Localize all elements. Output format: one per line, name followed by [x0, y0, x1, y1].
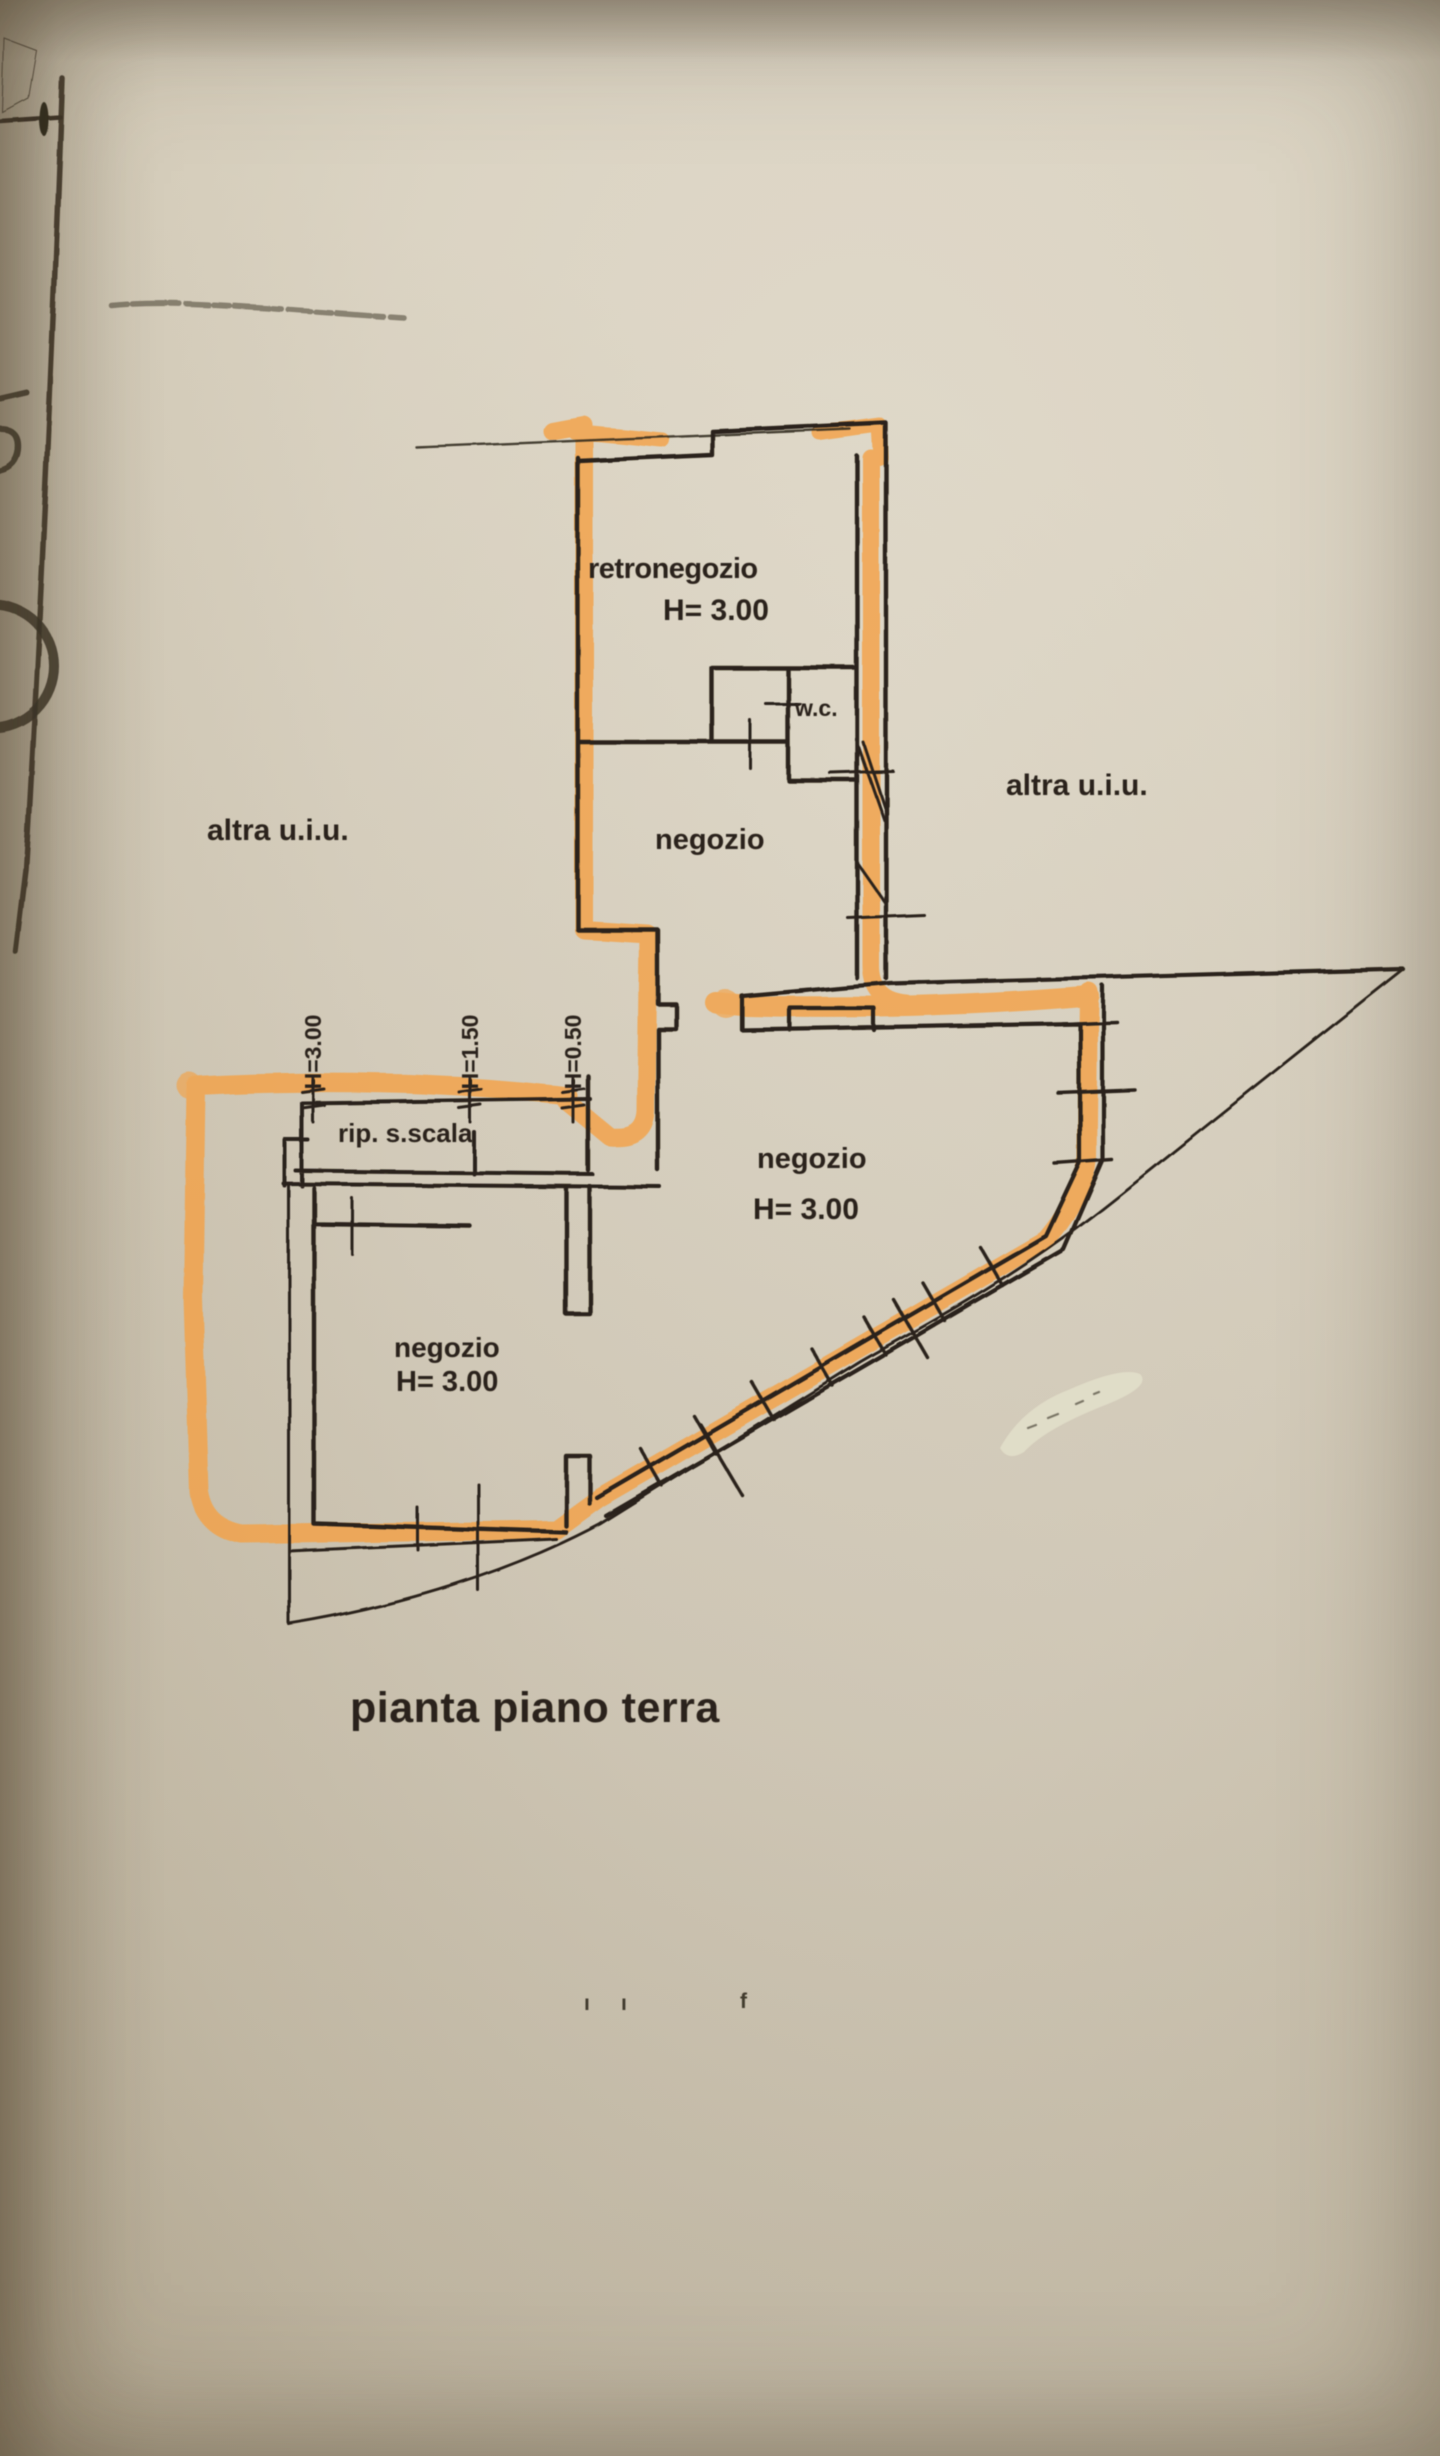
floor-plan-drawing: retronegozio H= 3.00 w.c. negozio altra …	[0, 0, 1440, 2456]
room-label-negozio-lower: negozio	[394, 1332, 500, 1363]
room-label-retronegozio: retronegozio	[588, 553, 758, 585]
edge-circle-fragment	[0, 604, 54, 728]
highlight-blob-left	[177, 1073, 203, 1099]
annotation-altra-uiu-left: altra u.i.u.	[207, 814, 349, 847]
height-annotation-h300: H=3.00	[300, 1015, 326, 1090]
room-height-retronegozio: H= 3.00	[663, 594, 769, 627]
height-annotation-h050: H=0.50	[560, 1015, 586, 1090]
stray-mark-1: ı	[584, 1992, 590, 2015]
highlight-upper-right-wall	[871, 458, 906, 1003]
whiteout-shape	[1000, 1372, 1143, 1456]
edge-glyph-fragment	[0, 392, 26, 470]
highlight-blob-mid	[712, 990, 740, 1018]
room-label-wc: w.c.	[794, 695, 838, 721]
upper-block-walls	[578, 423, 886, 1170]
scanned-floor-plan-photo: retronegozio H= 3.00 w.c. negozio altra …	[0, 0, 1440, 2456]
room-height-negozio-right: H= 3.00	[753, 1193, 859, 1226]
edge-smudge-line	[112, 304, 404, 318]
upper-block-door-ticks	[750, 704, 924, 918]
edge-tick-bar	[40, 102, 49, 136]
page-corner-shadow	[2, 38, 36, 112]
wall-linework	[284, 423, 1403, 1624]
edge-dimension-tick	[0, 117, 60, 121]
stray-mark-2: ı	[621, 1992, 627, 2015]
stray-mark-3: f	[740, 1990, 748, 2013]
highlight-bigroom-top-band	[716, 996, 1089, 1007]
room-label-negozio-upper: negozio	[655, 824, 765, 856]
room-height-negozio-lower: H= 3.00	[396, 1366, 498, 1398]
room-label-rip-s-scala: rip. s.scala	[338, 1118, 473, 1148]
edge-vertical-line	[16, 78, 62, 952]
annotation-altra-uiu-right: altra u.i.u.	[1006, 769, 1148, 802]
drawing-caption: pianta piano terra	[350, 1684, 720, 1732]
whiteout-patch	[1000, 1372, 1143, 1456]
lower-left-room-thin-lines	[289, 1186, 556, 1624]
height-annotation-h150: H=1.50	[457, 1015, 483, 1090]
room-label-negozio-right: negozio	[757, 1143, 867, 1175]
